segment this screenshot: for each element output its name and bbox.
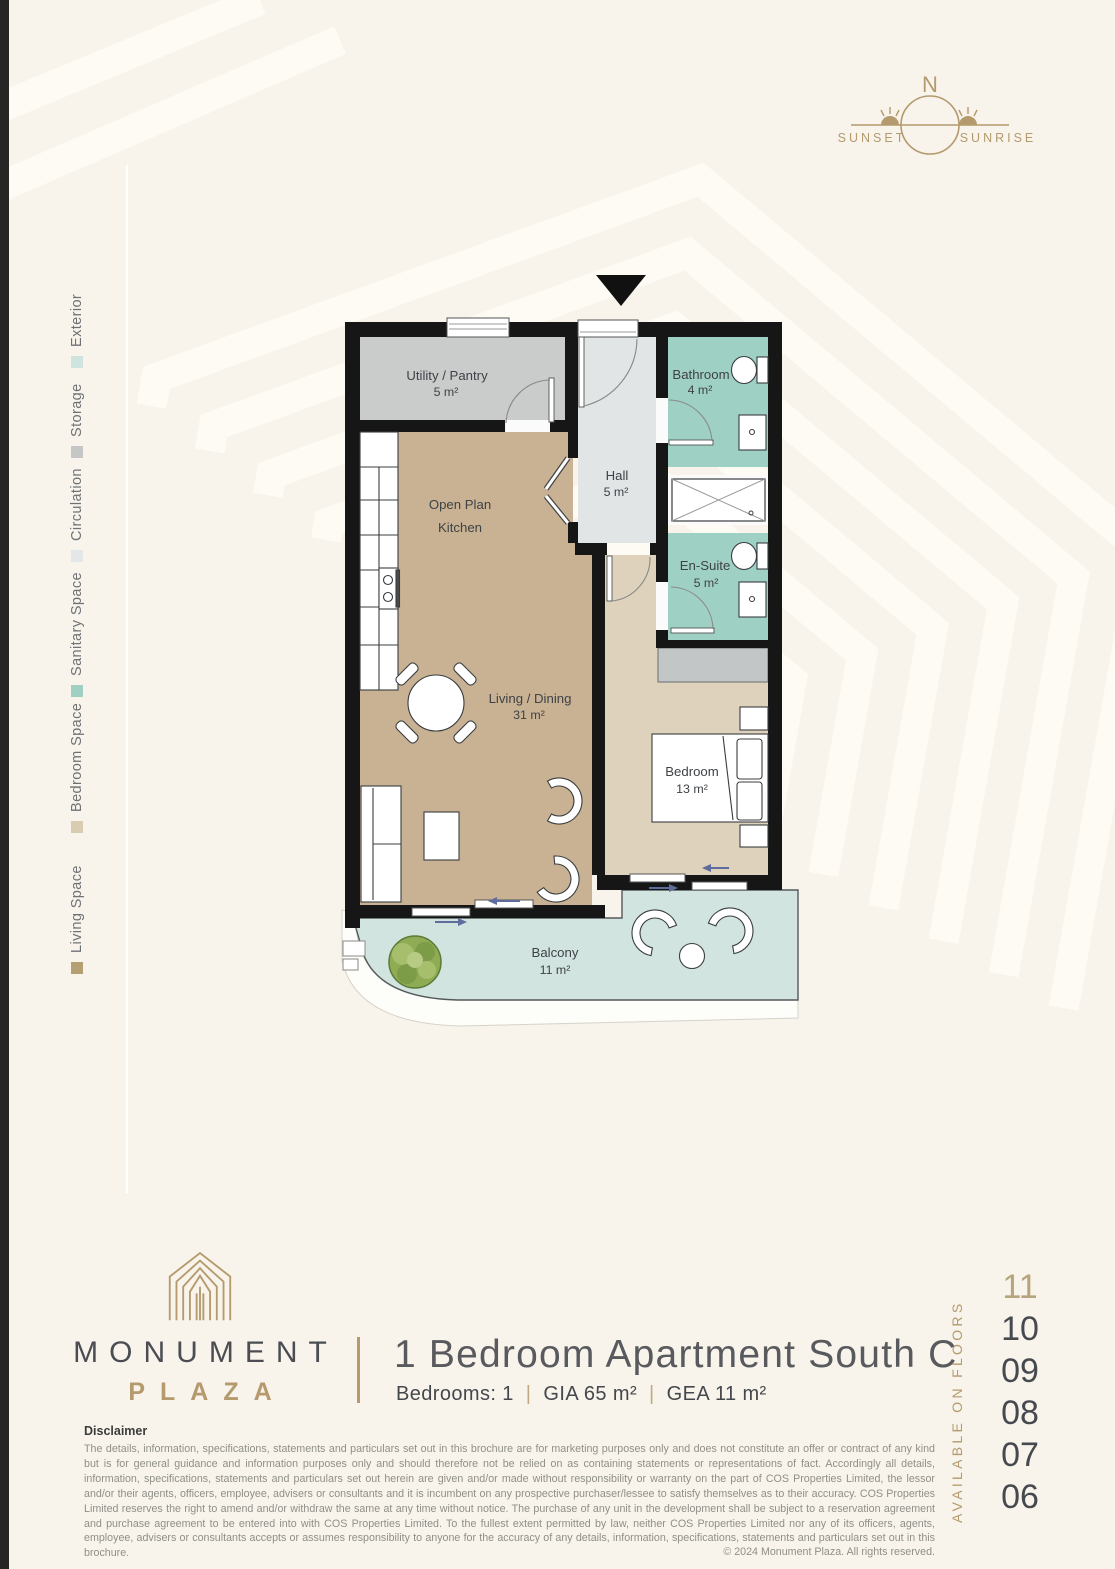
title-divider (357, 1337, 360, 1403)
balcony-table (680, 944, 705, 969)
floor-number-06: 06 (992, 1476, 1048, 1518)
utility-label: Utility / Pantry (406, 368, 488, 383)
legend-swatch (71, 446, 83, 458)
legend-item-sanitary-space: Sanitary Space (70, 572, 83, 697)
wardrobe (658, 648, 768, 682)
disclaimer-title: Disclaimer (84, 1424, 935, 1438)
unit-title: 1 Bedroom Apartment South C (394, 1333, 958, 1377)
legend-item-circulation: Circulation (70, 468, 83, 562)
balcony-label: Balcony (532, 945, 579, 960)
balcony-area: 11 m² (540, 963, 571, 977)
brand-subname: PLAZA (58, 1378, 342, 1407)
floor-number-09: 09 (992, 1350, 1048, 1392)
legend-label: Bedroom Space (69, 703, 85, 812)
legend-item-bedroom-space: Bedroom Space (70, 703, 83, 833)
disclaimer-block: Disclaimer The details, information, spe… (84, 1424, 935, 1558)
legend-label: Exterior (69, 294, 85, 347)
kitchen-counter (360, 432, 400, 690)
legend-label: Storage (69, 383, 85, 437)
bedroom-area: 13 m² (676, 782, 708, 796)
shower-tray (672, 479, 765, 521)
kitchen-label-line1: Open Plan (429, 497, 491, 512)
floor-number-10: 10 (992, 1308, 1048, 1350)
tree-icon (389, 936, 441, 988)
floor-number-07: 07 (992, 1434, 1048, 1476)
legend-item-storage: Storage (70, 383, 83, 458)
vertical-divider-line (126, 165, 128, 1193)
legend-label: Sanitary Space (69, 572, 85, 676)
sunset-sun-icon (881, 107, 899, 125)
spec-separator: | (526, 1383, 532, 1405)
spec-gia: GIA 65 m² (543, 1383, 637, 1405)
legend-swatch (71, 821, 83, 833)
legend-item-exterior: Exterior (70, 294, 83, 368)
brand-name: MONUMENT (58, 1336, 342, 1370)
unit-specs: Bedrooms: 1|GIA 65 m²|GEA 11 m² (396, 1383, 767, 1406)
floor-number-11: 11 (992, 1266, 1048, 1308)
ensuite-label: En-Suite (680, 558, 731, 573)
legend-item-living-space: Living Space (70, 865, 83, 974)
legend-label: Living Space (69, 865, 85, 953)
legend-label: Circulation (69, 468, 85, 541)
bedroom-label: Bedroom (665, 764, 719, 779)
floor-availability-list: 11 10 09 08 07 06 (992, 1266, 1048, 1518)
available-on-floors-label: AVAILABLE ON FLOORS (949, 1301, 965, 1523)
spec-bedrooms: Bedrooms: 1 (396, 1383, 514, 1405)
brochure-page: Living Space Bedroom Space Sanitary Spac… (0, 0, 1115, 1569)
copyright: © 2024 Monument Plaza. All rights reserv… (84, 1546, 935, 1558)
hall-label: Hall (606, 468, 629, 483)
page-edge-strip (0, 0, 9, 1569)
spec-gea: GEA 11 m² (667, 1383, 767, 1405)
sunrise-sun-icon (959, 107, 977, 125)
legend-swatch (71, 550, 83, 562)
floor-number-08: 08 (992, 1392, 1048, 1434)
living-area: 31 m² (513, 708, 545, 722)
hall-area: 5 m² (604, 485, 629, 499)
sunset-label: SUNSET (838, 131, 907, 145)
sunrise-label: SUNRISE (960, 131, 1037, 145)
spec-separator: | (649, 1383, 655, 1405)
monument-plaza-logo (158, 1248, 242, 1327)
legend-swatch (71, 356, 83, 368)
compass-icon: N SUNSET SUNRISE (818, 60, 1048, 170)
entry-arrow-icon (596, 275, 646, 306)
room-hall (578, 337, 656, 543)
coffee-table (424, 812, 459, 860)
disclaimer-body: The details, information, specifications… (84, 1442, 935, 1561)
bathroom-label: Bathroom (672, 367, 729, 382)
sofa (361, 786, 401, 902)
kitchen-label-line2: Kitchen (438, 520, 482, 535)
utility-area: 5 m² (434, 385, 459, 399)
ensuite-area: 5 m² (694, 576, 719, 590)
legend-swatch (71, 962, 83, 974)
bathroom-area: 4 m² (688, 383, 713, 397)
legend-swatch (71, 685, 83, 697)
floor-plan: Utility / Pantry 5 m² Open Plan Kitchen … (340, 312, 800, 1047)
living-label: Living / Dining (489, 691, 572, 706)
compass-north-label: N (922, 72, 938, 97)
